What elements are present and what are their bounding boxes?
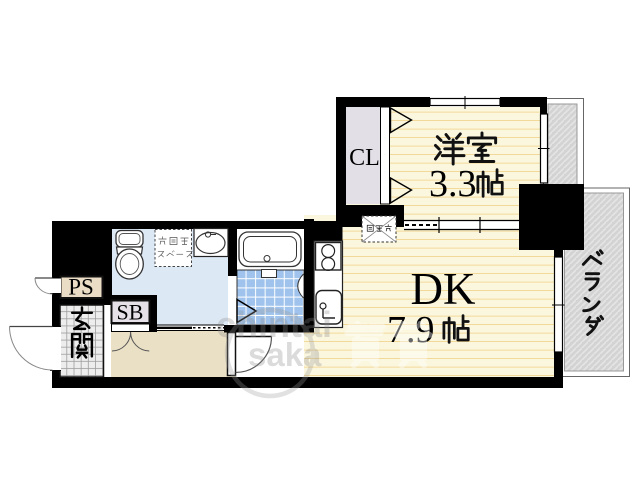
svg-text:DK: DK: [411, 264, 476, 314]
svg-text:3.3: 3.3: [429, 163, 477, 205]
svg-text:SB: SB: [117, 300, 144, 325]
svg-text:PS: PS: [68, 275, 94, 300]
svg-text:CL: CL: [349, 145, 380, 171]
